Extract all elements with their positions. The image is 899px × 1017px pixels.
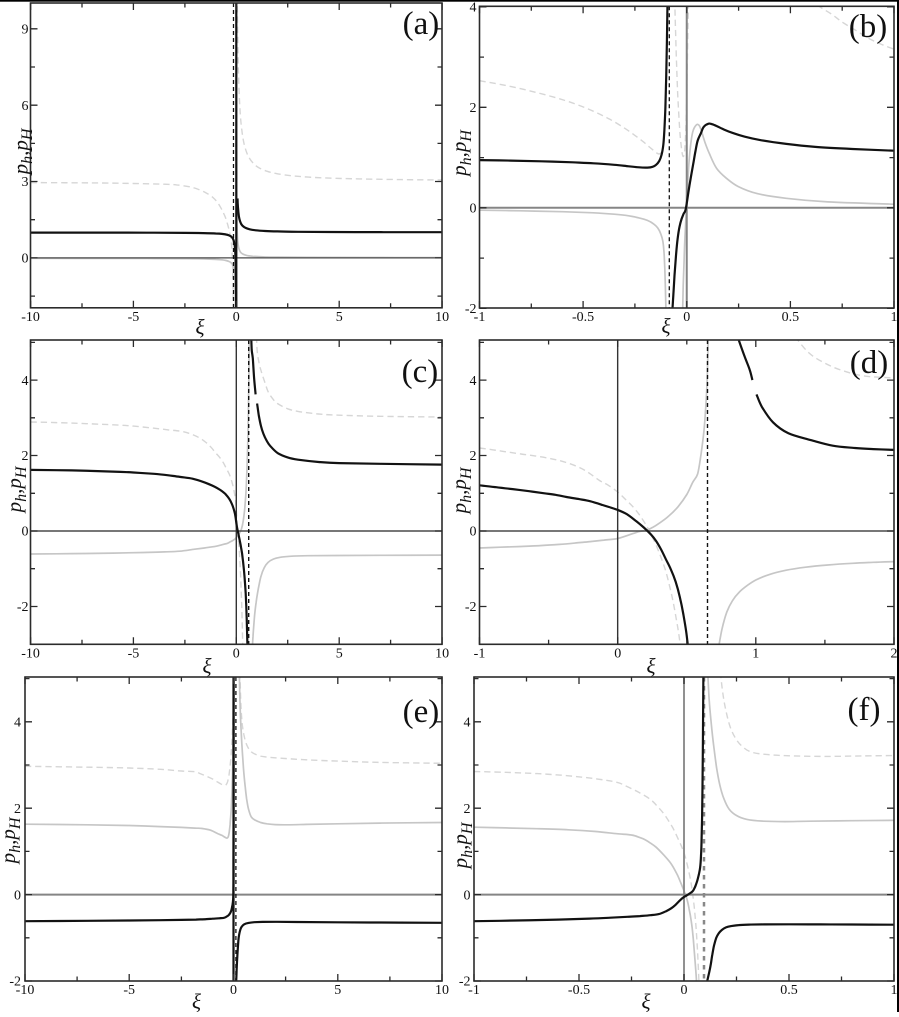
svg-text:1: 1 — [891, 310, 898, 325]
svg-text:-5: -5 — [123, 983, 135, 998]
svg-text:-5: -5 — [128, 647, 140, 662]
svg-text:6: 6 — [22, 99, 29, 114]
svg-text:1: 1 — [752, 647, 759, 662]
svg-text:5: 5 — [336, 647, 343, 662]
svg-text:-2: -2 — [17, 600, 29, 615]
svg-text:0: 0 — [14, 888, 21, 903]
svg-text:4: 4 — [470, 374, 477, 389]
svg-text:0.5: 0.5 — [780, 983, 798, 998]
svg-text:ξ: ξ — [662, 314, 671, 338]
svg-text:ξ: ξ — [642, 990, 651, 1013]
svg-text:0: 0 — [614, 647, 621, 662]
svg-text:-10: -10 — [21, 310, 40, 325]
svg-text:(d): (d) — [850, 345, 888, 381]
svg-text:0: 0 — [470, 202, 477, 217]
svg-text:4: 4 — [14, 716, 21, 731]
svg-text:ξ: ξ — [203, 654, 212, 678]
svg-text:9: 9 — [22, 23, 29, 38]
svg-text:-2: -2 — [459, 975, 471, 990]
svg-text:0: 0 — [22, 252, 29, 267]
svg-text:(b): (b) — [849, 9, 887, 45]
svg-text:-10: -10 — [21, 647, 40, 662]
svg-text:2: 2 — [14, 802, 21, 817]
svg-text:2: 2 — [891, 647, 898, 662]
svg-text:4: 4 — [470, 1, 477, 16]
svg-text:10: 10 — [435, 310, 449, 325]
svg-text:2: 2 — [470, 101, 477, 116]
svg-text:-2: -2 — [465, 302, 477, 317]
svg-text:ξ: ξ — [192, 990, 201, 1013]
svg-text:5: 5 — [336, 310, 343, 325]
svg-text:ξ: ξ — [647, 654, 656, 678]
svg-text:1: 1 — [891, 983, 898, 998]
svg-text:-2: -2 — [9, 975, 21, 990]
svg-text:10: 10 — [435, 983, 449, 998]
svg-text:(f): (f) — [848, 692, 881, 728]
svg-text:10: 10 — [435, 647, 449, 662]
svg-text:0: 0 — [230, 983, 237, 998]
svg-text:-2: -2 — [465, 600, 477, 615]
svg-text:(e): (e) — [403, 694, 440, 730]
svg-text:0: 0 — [464, 888, 471, 903]
svg-text:0: 0 — [233, 310, 240, 325]
svg-text:ξ: ξ — [196, 315, 205, 339]
svg-text:0: 0 — [233, 647, 240, 662]
svg-text:0: 0 — [470, 525, 477, 540]
svg-text:-0.5: -0.5 — [572, 310, 594, 325]
svg-text:0: 0 — [683, 310, 690, 325]
svg-text:4: 4 — [464, 716, 471, 731]
svg-text:2: 2 — [470, 449, 477, 464]
svg-text:4: 4 — [22, 374, 29, 389]
svg-text:(a): (a) — [403, 6, 440, 42]
svg-text:0.5: 0.5 — [782, 310, 800, 325]
svg-text:-5: -5 — [128, 310, 140, 325]
svg-text:-1: -1 — [474, 647, 486, 662]
svg-text:0: 0 — [22, 525, 29, 540]
svg-text:0: 0 — [681, 983, 688, 998]
svg-text:(c): (c) — [402, 354, 439, 390]
svg-text:3: 3 — [22, 175, 29, 190]
svg-text:2: 2 — [464, 802, 471, 817]
svg-text:-0.5: -0.5 — [568, 983, 590, 998]
svg-text:2: 2 — [22, 449, 29, 464]
svg-text:5: 5 — [334, 983, 341, 998]
